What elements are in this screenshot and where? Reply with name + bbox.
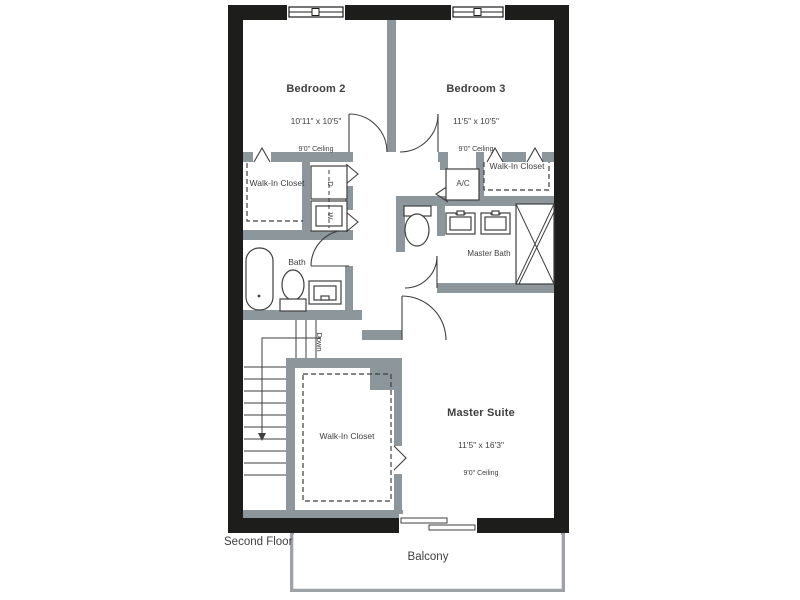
bedroom3-ceiling: 9'0" Ceiling bbox=[411, 146, 541, 154]
bath-toilet bbox=[280, 270, 306, 311]
vanity-sink-1 bbox=[446, 211, 475, 234]
balcony-label: Balcony bbox=[408, 551, 449, 565]
window-bedroom3 bbox=[451, 4, 505, 20]
bath-sink bbox=[309, 281, 341, 304]
master-toilet bbox=[404, 206, 431, 246]
floor-title: Second Floor bbox=[224, 536, 292, 550]
master-suite-ceiling: 9'0" Ceiling bbox=[411, 470, 551, 478]
master-suite-dims: 11'5" x 16'3" bbox=[411, 440, 551, 450]
ac-label: A/C bbox=[456, 179, 469, 188]
floor-plan-page: Bedroom 2 10'11" x 10'5" 9'0" Ceiling Be… bbox=[0, 0, 800, 600]
washer-label: W bbox=[324, 206, 334, 226]
bedroom3-dims: 11'5" x 10'5" bbox=[411, 116, 541, 126]
walk-in-closet-right-label: Walk-In Closet bbox=[489, 161, 545, 171]
bedroom2-ceiling: 9'0" Ceiling bbox=[251, 146, 381, 154]
bedroom2-label: Bedroom 2 10'11" x 10'5" 9'0" Ceiling bbox=[251, 64, 381, 173]
bathtub bbox=[246, 248, 273, 310]
floor-plan-drawing bbox=[0, 0, 800, 600]
master-bath-label: Master Bath bbox=[465, 249, 513, 258]
stairs-down-label: Down bbox=[313, 327, 323, 357]
bath-label: Bath bbox=[288, 257, 306, 267]
bedroom3-label: Bedroom 3 11'5" x 10'5" 9'0" Ceiling bbox=[411, 64, 541, 173]
stairs bbox=[244, 320, 321, 475]
dryer-label: D bbox=[324, 174, 334, 194]
bedroom2-name: Bedroom 2 bbox=[251, 83, 381, 96]
vanity-sink-2 bbox=[481, 211, 510, 234]
walk-in-closet-master-label: Walk-In Closet bbox=[319, 431, 375, 441]
shower bbox=[516, 204, 554, 284]
bedroom2-dims: 10'11" x 10'5" bbox=[251, 116, 381, 126]
walk-in-closet-left-label: Walk-In Closet bbox=[249, 178, 305, 188]
sliding-door bbox=[399, 514, 477, 534]
master-suite-label: Master Suite 11'5" x 16'3" 9'0" Ceiling bbox=[411, 388, 551, 497]
master-suite-name: Master Suite bbox=[411, 407, 551, 420]
bedroom3-name: Bedroom 3 bbox=[411, 83, 541, 96]
window-bedroom2 bbox=[287, 4, 345, 20]
